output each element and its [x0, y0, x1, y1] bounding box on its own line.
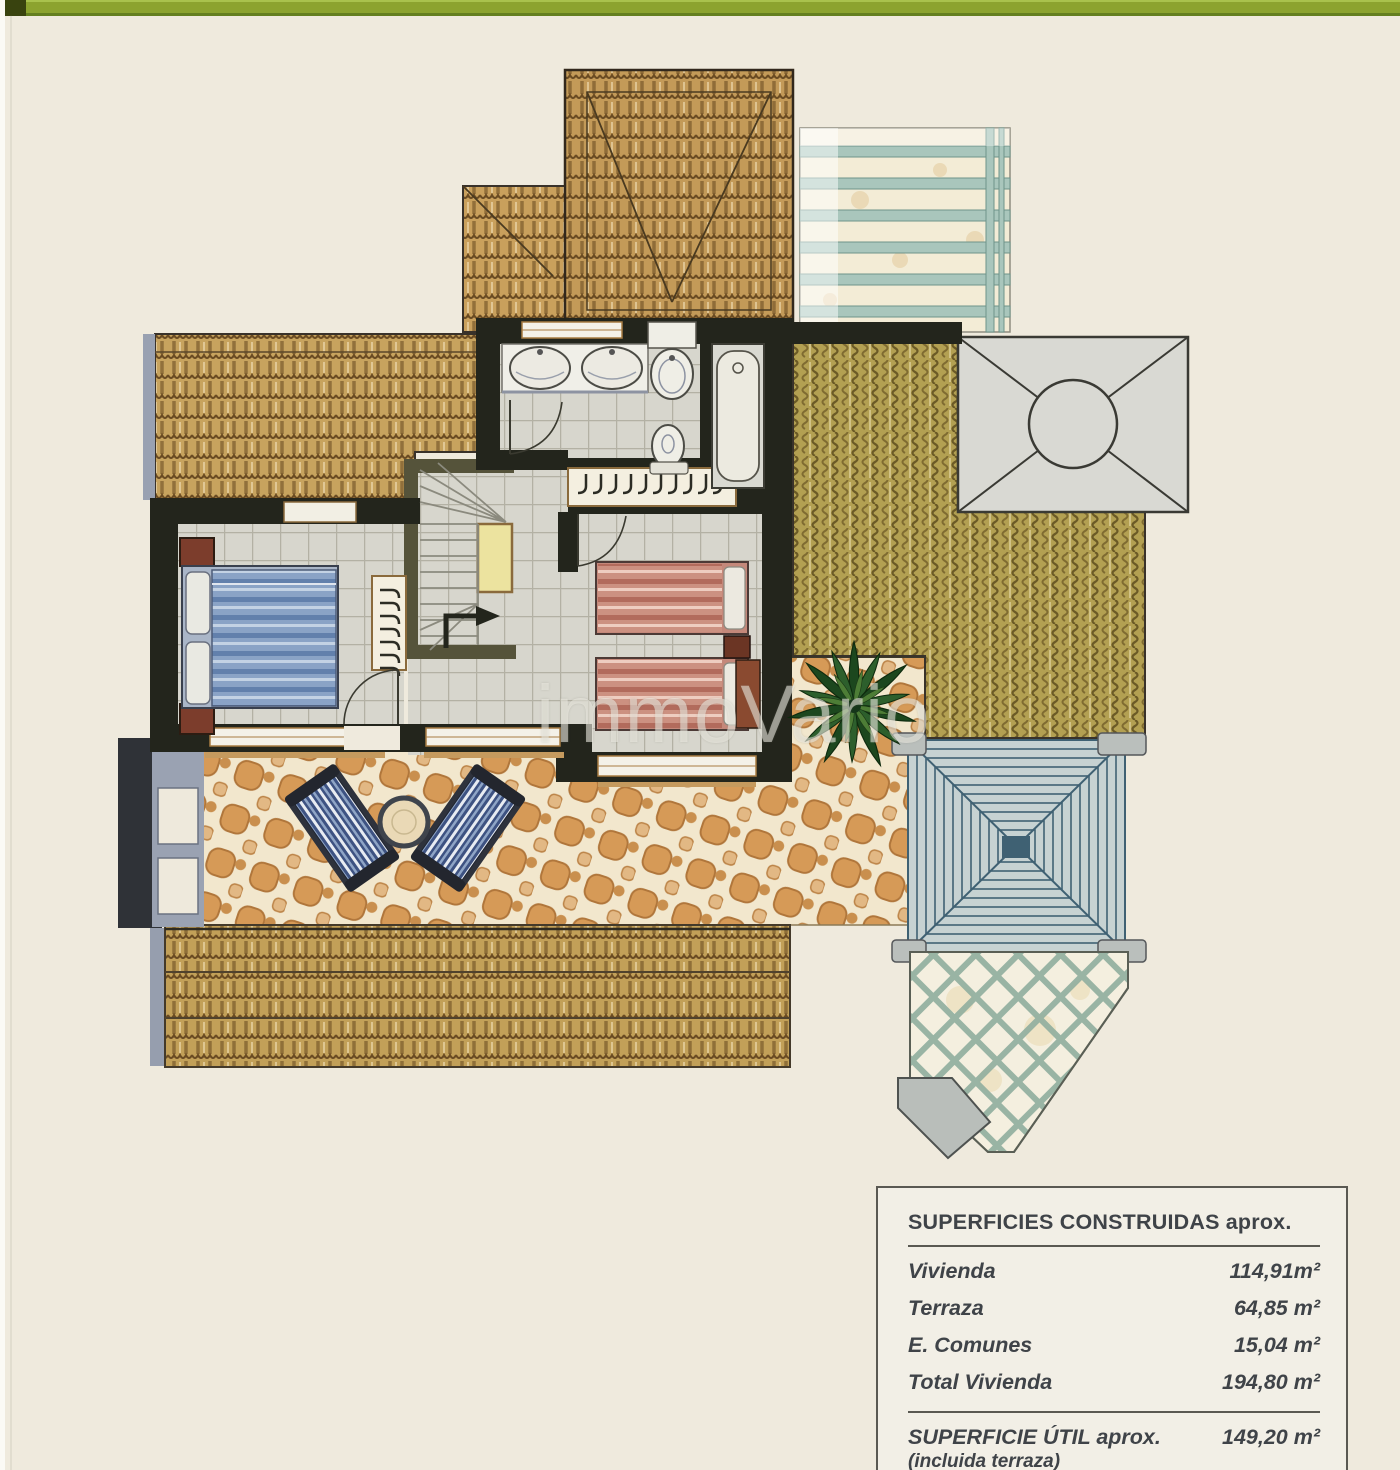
footer-label: SUPERFICIE ÚTIL aprox. (incluida terraza…	[908, 1425, 1161, 1470]
patio-table	[380, 798, 428, 846]
roof-shadow	[150, 928, 164, 1066]
row-value: 64,85 m²	[1234, 1290, 1320, 1327]
lattice-trellis	[898, 952, 1128, 1158]
roof-upper-small	[463, 186, 567, 332]
pergola-pyramid	[892, 733, 1146, 962]
bathtub	[712, 344, 764, 488]
double-bed	[182, 566, 338, 708]
single-bed	[596, 658, 748, 730]
row-value: 114,91m²	[1230, 1253, 1320, 1290]
divider	[908, 1411, 1320, 1413]
footer-label-main: SUPERFICIE ÚTIL aprox.	[908, 1425, 1161, 1449]
table-row: Terraza 64,85 m²	[908, 1290, 1320, 1327]
roof-top-hipped	[565, 70, 793, 332]
table-row: Total Vivienda 194,80 m²	[908, 1364, 1320, 1401]
surfaces-table-title: SUPERFICIES CONSTRUIDAS aprox.	[908, 1210, 1320, 1235]
row-label: E. Comunes	[908, 1327, 1032, 1364]
footer-value: 149,20 m²	[1222, 1425, 1320, 1470]
row-value: 15,04 m²	[1234, 1327, 1320, 1364]
row-label: Terraza	[908, 1290, 984, 1327]
closet-bedroom1	[372, 576, 406, 676]
nightstand	[724, 636, 750, 658]
skylight	[958, 337, 1188, 512]
bench	[284, 502, 356, 522]
nightstand	[180, 538, 214, 566]
footer-note: (incluida terraza)	[908, 1450, 1161, 1470]
pergola-slats	[800, 128, 1010, 332]
row-label: Vivienda	[908, 1253, 996, 1290]
table-row: Vivienda 114,91m²	[908, 1253, 1320, 1290]
stair-hall-floor	[408, 463, 580, 755]
dresser	[736, 660, 760, 728]
table-row: E. Comunes 15,04 m²	[908, 1327, 1320, 1364]
stair-closet	[478, 524, 512, 592]
roof-lower-strip	[150, 925, 790, 1067]
row-value: 194,80 m²	[1222, 1364, 1320, 1401]
terrace-steps	[118, 738, 204, 928]
brochure-page: immoVario SUPERFICIES CONSTRUIDAS aprox.…	[0, 0, 1400, 1470]
single-bed	[596, 562, 748, 634]
surfaces-table: SUPERFICIES CONSTRUIDAS aprox. Vivienda …	[876, 1186, 1348, 1470]
paper-crease	[10, 15, 12, 1470]
page-edge	[0, 0, 5, 1470]
divider	[908, 1245, 1320, 1247]
toilet	[648, 322, 696, 399]
table-footer: SUPERFICIE ÚTIL aprox. (incluida terraza…	[908, 1425, 1320, 1470]
row-label: Total Vivienda	[908, 1364, 1052, 1401]
